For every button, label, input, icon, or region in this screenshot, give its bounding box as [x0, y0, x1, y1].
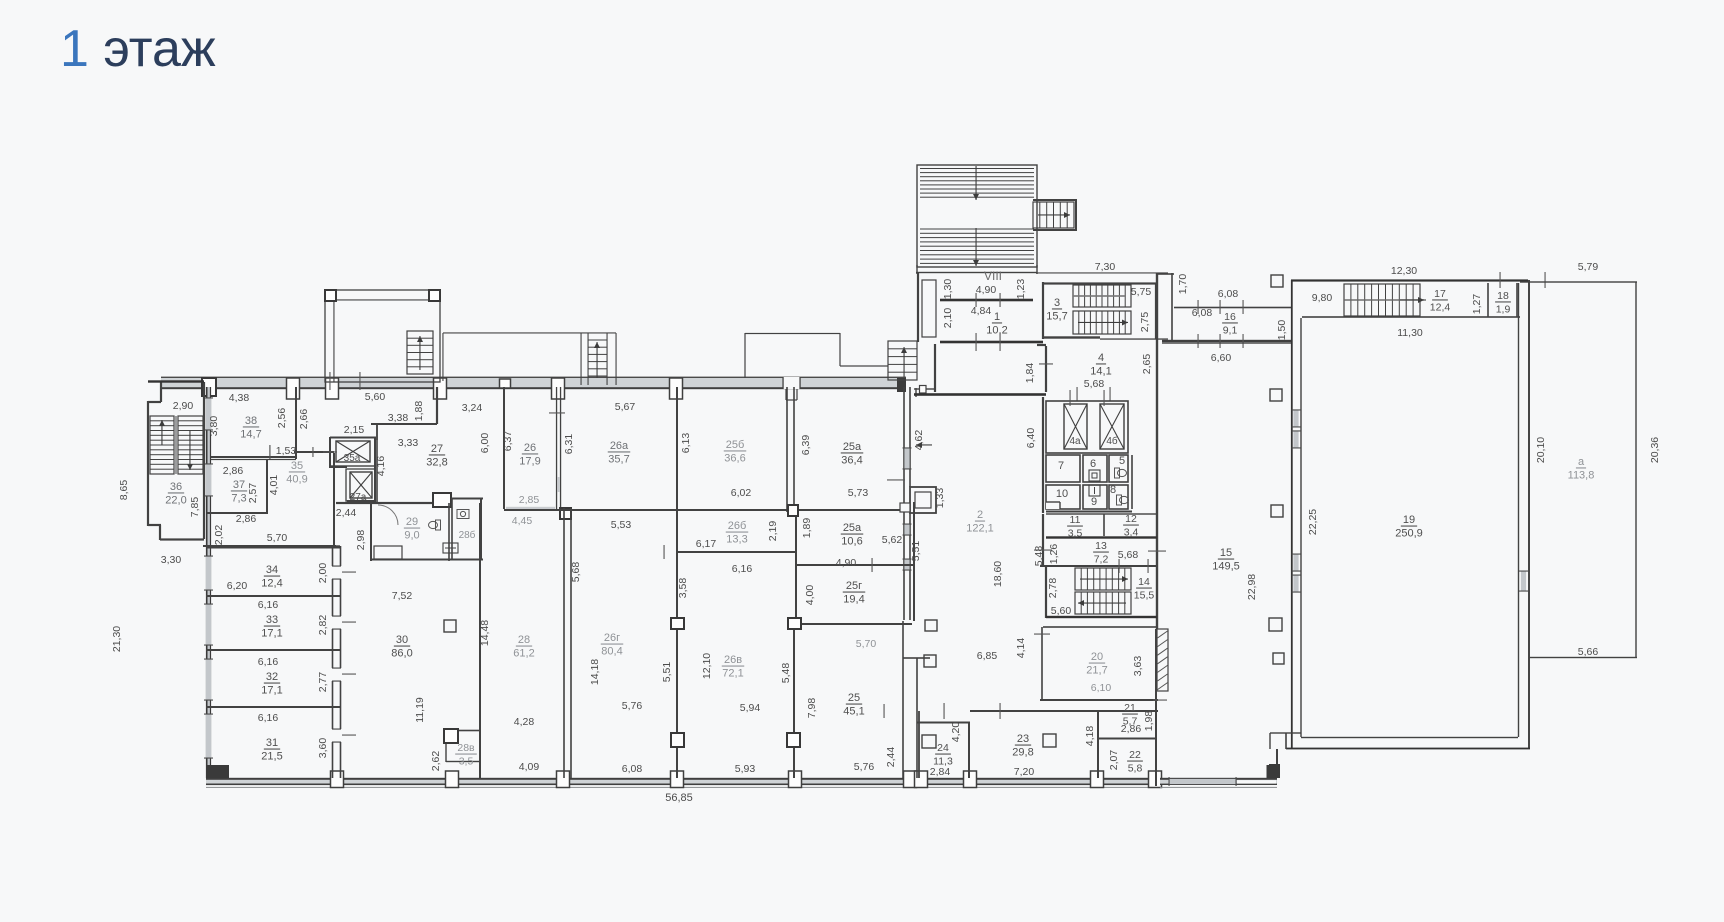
svg-text:27: 27 — [431, 443, 443, 455]
svg-text:149,5: 149,5 — [1212, 561, 1240, 573]
svg-text:3,38: 3,38 — [388, 412, 409, 424]
svg-text:5,51: 5,51 — [661, 662, 673, 683]
svg-text:6,31: 6,31 — [563, 434, 575, 455]
svg-text:3,4: 3,4 — [1124, 527, 1139, 539]
svg-text:10: 10 — [1056, 488, 1068, 500]
svg-text:21,30: 21,30 — [111, 626, 123, 652]
svg-text:7,85: 7,85 — [189, 497, 201, 518]
svg-text:80,4: 80,4 — [601, 646, 622, 658]
svg-text:13,3: 13,3 — [726, 534, 747, 546]
svg-text:26б: 26б — [728, 520, 747, 532]
svg-text:36: 36 — [170, 481, 182, 493]
svg-text:122,1: 122,1 — [966, 523, 994, 535]
svg-text:2,07: 2,07 — [1108, 750, 1120, 771]
svg-text:28б: 28б — [459, 529, 476, 541]
svg-text:86,0: 86,0 — [391, 648, 412, 660]
svg-text:26а: 26а — [610, 440, 629, 452]
svg-text:5,76: 5,76 — [622, 700, 643, 712]
svg-text:2,57: 2,57 — [247, 483, 259, 504]
svg-text:22: 22 — [1129, 749, 1141, 761]
svg-text:7,3: 7,3 — [231, 493, 246, 505]
svg-text:15,5: 15,5 — [1134, 590, 1155, 602]
svg-text:9,80: 9,80 — [1312, 292, 1333, 304]
svg-text:12,4: 12,4 — [1430, 302, 1451, 314]
svg-text:2,86: 2,86 — [1121, 723, 1142, 735]
svg-text:5,60: 5,60 — [1051, 605, 1072, 617]
svg-text:15: 15 — [1220, 547, 1232, 559]
svg-text:1,26: 1,26 — [1048, 544, 1060, 565]
svg-text:2,65: 2,65 — [1141, 354, 1153, 375]
svg-text:18,60: 18,60 — [992, 561, 1004, 587]
svg-text:5,76: 5,76 — [854, 761, 875, 773]
svg-text:10,6: 10,6 — [841, 536, 862, 548]
svg-text:21: 21 — [1124, 702, 1136, 714]
svg-text:4,62: 4,62 — [913, 430, 925, 451]
svg-text:2,19: 2,19 — [767, 521, 779, 542]
svg-text:6,85: 6,85 — [977, 650, 998, 662]
svg-text:2,86: 2,86 — [223, 465, 244, 477]
svg-text:1,33: 1,33 — [934, 488, 946, 509]
svg-text:9: 9 — [1091, 496, 1097, 508]
svg-text:1,30: 1,30 — [942, 279, 954, 300]
svg-text:25а: 25а — [843, 522, 862, 534]
svg-text:2,78: 2,78 — [1047, 578, 1059, 599]
svg-text:3,33: 3,33 — [398, 437, 419, 449]
svg-text:4,18: 4,18 — [1084, 726, 1096, 747]
svg-text:4б: 4б — [1106, 435, 1118, 447]
svg-text:2,86: 2,86 — [236, 513, 257, 525]
svg-text:7,30: 7,30 — [1095, 261, 1116, 273]
svg-text:4,28: 4,28 — [514, 716, 535, 728]
svg-text:29,8: 29,8 — [1012, 747, 1033, 759]
svg-text:6,08: 6,08 — [622, 763, 643, 775]
svg-text:6,00: 6,00 — [479, 433, 491, 454]
svg-text:5,70: 5,70 — [267, 532, 288, 544]
svg-text:17,1: 17,1 — [261, 685, 282, 697]
svg-text:14: 14 — [1138, 576, 1150, 588]
svg-text:6,10: 6,10 — [1091, 682, 1112, 694]
svg-text:2,75: 2,75 — [1139, 312, 1151, 333]
svg-text:113,8: 113,8 — [1568, 470, 1595, 482]
svg-text:4,14: 4,14 — [1015, 638, 1027, 659]
svg-text:38: 38 — [245, 415, 257, 427]
svg-text:2,90: 2,90 — [173, 400, 194, 412]
svg-text:25: 25 — [848, 692, 860, 704]
svg-text:8,65: 8,65 — [118, 480, 130, 501]
svg-text:17: 17 — [1434, 288, 1446, 300]
svg-text:32,8: 32,8 — [426, 457, 447, 469]
svg-text:5,67: 5,67 — [615, 401, 636, 413]
svg-text:7,20: 7,20 — [1014, 766, 1035, 778]
svg-text:2,44: 2,44 — [336, 507, 357, 519]
svg-text:5,75: 5,75 — [1131, 286, 1152, 298]
svg-text:3: 3 — [1054, 297, 1060, 309]
svg-text:6,39: 6,39 — [800, 435, 812, 456]
svg-text:56,85: 56,85 — [665, 792, 693, 804]
svg-text:4,20: 4,20 — [950, 722, 962, 743]
svg-text:9,1: 9,1 — [1223, 325, 1238, 337]
svg-text:5,93: 5,93 — [735, 763, 756, 775]
svg-text:28в: 28в — [457, 742, 475, 754]
svg-text:18: 18 — [1497, 290, 1509, 302]
svg-text:9,0: 9,0 — [404, 530, 419, 542]
svg-text:11,30: 11,30 — [1397, 327, 1423, 339]
svg-text:14,18: 14,18 — [589, 659, 601, 685]
svg-text:6,16: 6,16 — [732, 563, 753, 575]
svg-text:5,79: 5,79 — [1578, 261, 1599, 273]
svg-text:8: 8 — [1110, 484, 1116, 496]
svg-text:28: 28 — [518, 634, 530, 646]
svg-text:22,25: 22,25 — [1307, 509, 1319, 535]
svg-text:6,60: 6,60 — [1211, 352, 1232, 364]
svg-text:4: 4 — [1098, 352, 1104, 364]
svg-text:2,98: 2,98 — [355, 530, 367, 551]
svg-text:7,2: 7,2 — [1094, 554, 1109, 566]
svg-text:25а: 25а — [843, 441, 862, 453]
svg-text:32: 32 — [266, 671, 278, 683]
svg-text:25б: 25б — [726, 439, 745, 451]
svg-text:26: 26 — [524, 442, 536, 454]
svg-text:36,6: 36,6 — [724, 453, 745, 465]
svg-text:23: 23 — [1017, 733, 1029, 745]
svg-text:5,48: 5,48 — [780, 663, 792, 684]
svg-text:40,9: 40,9 — [286, 474, 307, 486]
svg-text:6,40: 6,40 — [1025, 428, 1037, 449]
svg-text:6,16: 6,16 — [258, 656, 279, 668]
svg-text:3,5: 3,5 — [459, 756, 474, 768]
svg-text:5,51: 5,51 — [910, 541, 922, 562]
svg-text:6,13: 6,13 — [680, 433, 692, 454]
svg-text:4,38: 4,38 — [229, 392, 250, 404]
svg-text:а: а — [1578, 456, 1585, 468]
svg-text:7,98: 7,98 — [806, 698, 818, 719]
svg-text:5,70: 5,70 — [856, 638, 877, 650]
svg-text:12,10: 12,10 — [701, 653, 713, 679]
svg-text:34: 34 — [266, 564, 278, 576]
svg-text:5,62: 5,62 — [882, 534, 903, 546]
svg-text:4,84: 4,84 — [971, 305, 992, 317]
svg-text:61,2: 61,2 — [513, 648, 534, 660]
svg-text:19: 19 — [1403, 514, 1415, 526]
svg-text:5,66: 5,66 — [1578, 646, 1599, 658]
svg-text:13: 13 — [1095, 540, 1107, 552]
svg-text:6: 6 — [1090, 458, 1096, 470]
svg-text:4,90: 4,90 — [976, 284, 997, 296]
svg-text:3,63: 3,63 — [1132, 656, 1144, 677]
svg-text:5,68: 5,68 — [1084, 378, 1105, 390]
svg-text:6,02: 6,02 — [731, 487, 752, 499]
svg-text:5,94: 5,94 — [740, 702, 761, 714]
svg-text:14,7: 14,7 — [240, 429, 261, 441]
svg-text:2,66: 2,66 — [298, 409, 310, 430]
svg-text:35,7: 35,7 — [608, 454, 629, 466]
svg-text:22,0: 22,0 — [165, 495, 186, 507]
svg-text:2,02: 2,02 — [213, 525, 225, 546]
svg-text:2,62: 2,62 — [430, 751, 442, 772]
svg-text:29: 29 — [406, 516, 418, 528]
svg-text:2,77: 2,77 — [317, 672, 329, 693]
svg-text:7: 7 — [1058, 460, 1064, 472]
svg-text:2,00: 2,00 — [317, 563, 329, 584]
svg-text:6,20: 6,20 — [227, 580, 248, 592]
svg-text:6,08: 6,08 — [1192, 307, 1213, 319]
svg-text:4,90: 4,90 — [836, 557, 857, 569]
svg-text:12,4: 12,4 — [261, 578, 282, 590]
svg-text:35: 35 — [291, 460, 303, 472]
svg-text:1,9: 1,9 — [1496, 304, 1511, 316]
svg-text:2,82: 2,82 — [317, 615, 329, 636]
svg-text:19,4: 19,4 — [843, 594, 864, 606]
svg-text:3,5: 3,5 — [1068, 528, 1083, 540]
svg-text:20,36: 20,36 — [1649, 437, 1661, 463]
svg-text:2,85: 2,85 — [519, 494, 540, 506]
svg-text:2,15: 2,15 — [344, 424, 365, 436]
svg-text:6,08: 6,08 — [1218, 288, 1239, 300]
svg-text:5,8: 5,8 — [1128, 763, 1143, 775]
svg-text:25г: 25г — [846, 580, 862, 592]
svg-text:20,10: 20,10 — [1535, 437, 1547, 463]
svg-text:11: 11 — [1070, 514, 1081, 526]
svg-text:17,9: 17,9 — [519, 456, 540, 468]
svg-text:30: 30 — [396, 634, 408, 646]
svg-text:33: 33 — [266, 614, 278, 626]
svg-text:45,1: 45,1 — [843, 706, 864, 718]
svg-text:4а: 4а — [1069, 436, 1081, 447]
svg-text:15,7: 15,7 — [1046, 311, 1067, 323]
svg-text:VIII: VIII — [984, 269, 1002, 283]
svg-text:26г: 26г — [604, 632, 620, 644]
svg-text:2,10: 2,10 — [942, 308, 954, 329]
svg-text:17,1: 17,1 — [261, 628, 282, 640]
svg-text:2,56: 2,56 — [276, 408, 288, 429]
svg-text:26в: 26в — [724, 654, 742, 666]
svg-text:5,60: 5,60 — [365, 391, 386, 403]
svg-text:1,27: 1,27 — [1471, 294, 1483, 315]
svg-text:5,73: 5,73 — [848, 487, 869, 499]
svg-text:6,17: 6,17 — [696, 538, 717, 550]
svg-text:6,16: 6,16 — [258, 712, 279, 724]
svg-text:21,5: 21,5 — [261, 751, 282, 763]
svg-text:1,23: 1,23 — [1015, 279, 1027, 300]
svg-text:22,98: 22,98 — [1246, 574, 1258, 600]
svg-text:1: 1 — [994, 311, 1000, 323]
svg-text:21,7: 21,7 — [1086, 665, 1107, 677]
svg-text:72,1: 72,1 — [722, 668, 743, 680]
svg-text:5,68: 5,68 — [1118, 549, 1139, 561]
svg-text:1,50: 1,50 — [1276, 320, 1288, 341]
svg-text:4,45: 4,45 — [512, 515, 533, 527]
svg-text:12: 12 — [1125, 513, 1137, 525]
svg-text:14,48: 14,48 — [479, 620, 491, 646]
svg-text:37: 37 — [233, 479, 245, 491]
svg-text:6,37: 6,37 — [502, 431, 514, 452]
svg-text:6,16: 6,16 — [258, 599, 279, 611]
svg-text:14,1: 14,1 — [1090, 366, 1111, 378]
svg-text:24: 24 — [937, 742, 949, 754]
svg-text:3,80: 3,80 — [208, 416, 220, 437]
svg-text:3,30: 3,30 — [161, 554, 182, 566]
svg-text:1,88: 1,88 — [413, 401, 425, 422]
svg-text:16: 16 — [1224, 311, 1236, 323]
svg-text:1 этаж: 1 этаж — [60, 20, 216, 78]
svg-text:3,58: 3,58 — [677, 578, 689, 599]
svg-text:1,70: 1,70 — [1177, 274, 1189, 295]
svg-text:2: 2 — [977, 509, 983, 521]
svg-text:7,52: 7,52 — [392, 590, 413, 602]
svg-text:27а: 27а — [350, 492, 367, 503]
svg-text:2,84: 2,84 — [930, 766, 951, 778]
svg-text:4,09: 4,09 — [519, 761, 540, 773]
svg-text:250,9: 250,9 — [1395, 528, 1423, 540]
svg-text:4,01: 4,01 — [268, 475, 280, 496]
svg-text:5,48: 5,48 — [1033, 546, 1045, 567]
svg-text:20: 20 — [1091, 651, 1103, 663]
svg-text:36,4: 36,4 — [841, 455, 862, 467]
svg-text:1,98: 1,98 — [1143, 711, 1155, 732]
svg-text:5,53: 5,53 — [611, 519, 632, 531]
svg-text:1,53: 1,53 — [276, 445, 297, 457]
svg-text:3,24: 3,24 — [462, 402, 483, 414]
svg-text:1,84: 1,84 — [1024, 363, 1036, 384]
svg-text:11,19: 11,19 — [414, 697, 426, 723]
svg-text:1,89: 1,89 — [801, 518, 813, 539]
svg-text:10,2: 10,2 — [986, 325, 1007, 337]
svg-text:5: 5 — [1119, 455, 1125, 467]
svg-text:12,30: 12,30 — [1391, 265, 1417, 277]
svg-text:2,44: 2,44 — [885, 747, 897, 768]
svg-text:3,60: 3,60 — [317, 738, 329, 759]
svg-text:35а: 35а — [344, 453, 361, 464]
svg-text:31: 31 — [266, 737, 278, 749]
svg-text:4,00: 4,00 — [804, 585, 816, 606]
